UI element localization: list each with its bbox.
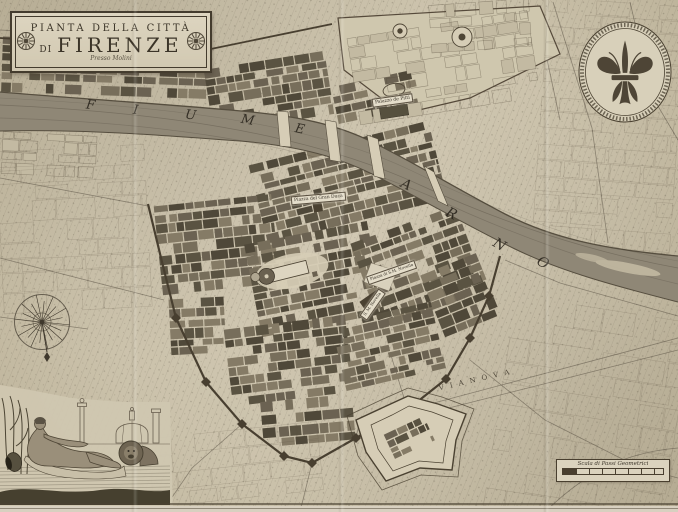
antique-map-of-florence: PIANTA DELLA CITTÀ DIFIRENZE Presso Moli… (0, 0, 678, 512)
fleur-de-lis-medallion (579, 22, 671, 122)
map-engraving (0, 0, 678, 512)
river-god-vignette (0, 385, 173, 512)
river-name-letter: F (85, 98, 96, 112)
scale-bar-label: Scala di Passi Geometrici (557, 461, 669, 467)
scale-bar-ruler (562, 468, 664, 475)
river-name-letter: M (240, 113, 255, 128)
map-title-line2: DIFIRENZE (16, 33, 206, 57)
cartouche-frame: PIANTA DELLA CITTÀ DIFIRENZE Presso Moli… (15, 16, 207, 68)
river-name-letter: E (294, 122, 306, 137)
title-cartouche: PIANTA DELLA CITTÀ DIFIRENZE Presso Moli… (10, 11, 212, 73)
river-name-letter: U (184, 108, 197, 122)
scale-bar: Scala di Passi Geometrici (556, 459, 670, 482)
title-firenze: FIRENZE (57, 33, 182, 57)
title-di: DI (39, 45, 52, 55)
publisher-imprint: Presso Molini (16, 55, 206, 62)
